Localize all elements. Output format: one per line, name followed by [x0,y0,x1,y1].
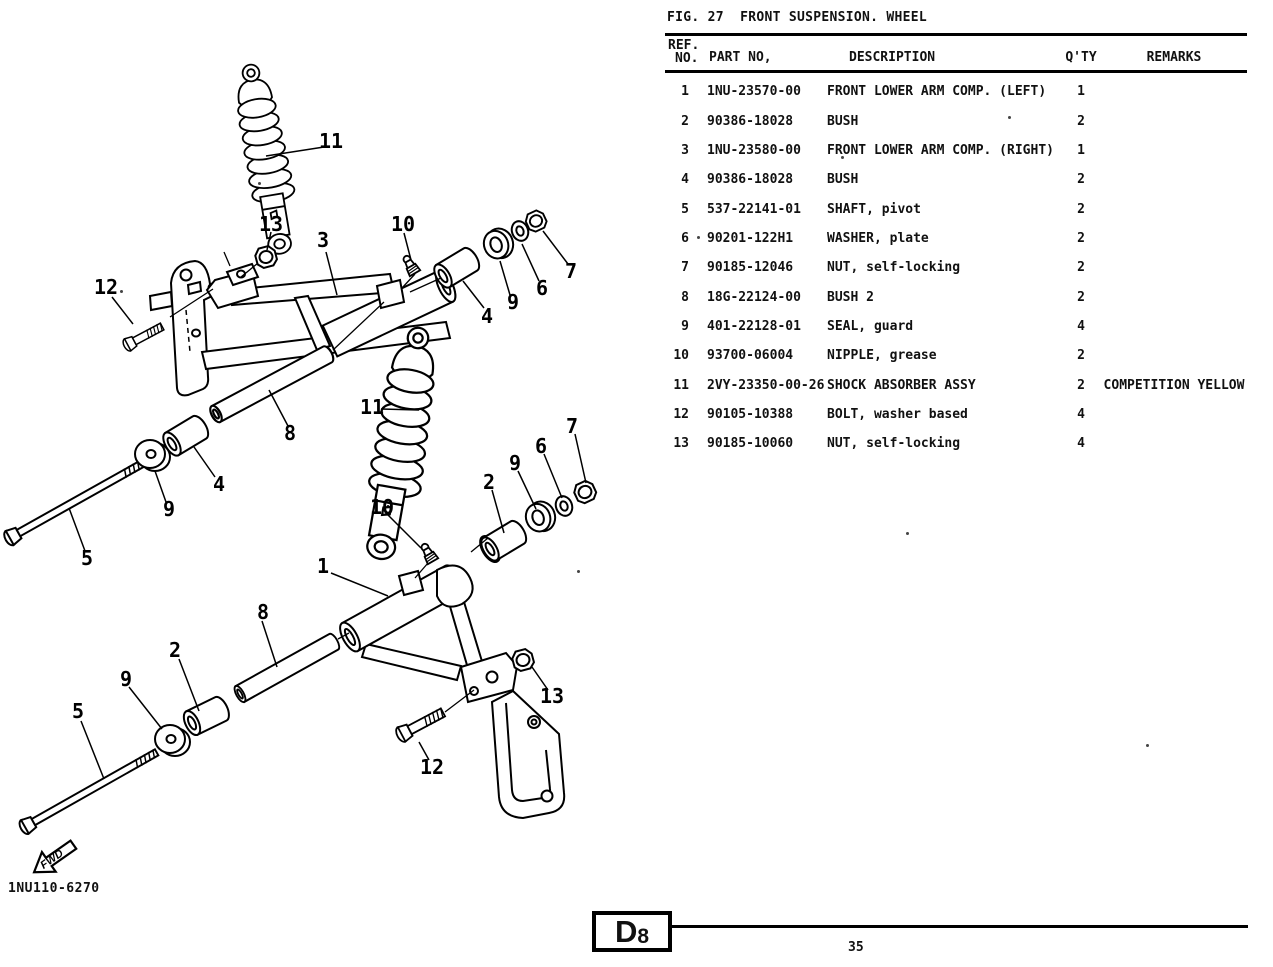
header-qty: Q'TY [1059,50,1103,65]
callout-3: 3 [317,228,329,252]
table-row: 11NU-23570-00FRONT LOWER ARM COMP. (LEFT… [665,77,1247,106]
callout-9-lower: 9 [120,667,132,691]
table-header: REF. NO. PART NO, DESCRIPTION Q'TY REMAR… [665,36,1247,70]
table-row: 5537-22141-01SHAFT, pivot2 [665,194,1247,223]
callout-12-left: 12 [94,275,118,299]
bolt-12-left [121,321,165,353]
shaft-5-lower [17,746,160,836]
callout-9-mid: 9 [163,497,175,521]
scan-speck [258,182,261,185]
table-row: 1093700-06004NIPPLE, grease2 [665,341,1247,370]
table-row: 112VY-23350-00-26SHOCK ABSORBER ASSY2COM… [665,370,1247,399]
scan-speck [841,156,844,159]
callout-6-top: 6 [536,276,548,300]
fwd-arrow: FWD [27,835,80,882]
header-ref: REF. NO. [665,39,707,65]
callout-11-mid: 11 [360,395,384,419]
callout-1: 1 [317,554,329,578]
tube-8-lower [232,632,341,704]
callout-8-lower: 8 [257,600,269,624]
table-row: 490386-18028BUSH2 [665,165,1247,194]
callout-5-upper: 5 [81,546,93,570]
table-body: 11NU-23570-00FRONT LOWER ARM COMP. (LEFT… [665,73,1247,458]
figure-title: FIG. 27 FRONT SUSPENSION. WHEEL [667,10,927,25]
scan-speck [120,290,123,293]
exploded-diagram: 11 13 3 10 12 4 9 6 7 8 4 9 5 11 7 6 9 2… [0,0,660,900]
callout-5-lower: 5 [72,699,84,723]
table-row: 818G-22124-00BUSH 22 [665,282,1247,311]
callout-13-bracket: 13 [540,684,564,708]
callout-11-top: 11 [319,129,343,153]
callout-8-upper: 8 [284,421,296,445]
callout-2-right: 2 [483,470,495,494]
scan-speck [697,236,700,239]
table-row: 31NU-23580-00FRONT LOWER ARM COMP. (RIGH… [665,136,1247,165]
seal-9-lower [155,725,190,756]
page-number: 35 [848,940,864,955]
scan-speck [1008,116,1011,119]
callout-9-top: 9 [507,290,519,314]
callout-12-bracket: 12 [420,755,444,779]
parts-table: REF. NO. PART NO, DESCRIPTION Q'TY REMAR… [665,33,1247,458]
callout-10-top: 10 [391,212,415,236]
table-row: 1290105-10388BOLT, washer based4 [665,400,1247,429]
table-row: 290386-18028BUSH2 [665,106,1247,135]
bolt-12-bracket [394,705,447,743]
seal-9-right [522,498,560,536]
catalog-page: 11 13 3 10 12 4 9 6 7 8 4 9 5 11 7 6 9 2… [0,0,1273,967]
grease-nipple-mid [418,541,438,564]
callout-7-top: 7 [565,259,577,283]
header-description: DESCRIPTION [827,50,1059,65]
drawing-number: 1NU110-6270 [8,881,100,896]
scan-speck [1146,744,1149,747]
callout-10-mid: 10 [370,495,394,519]
scan-speck [577,570,580,573]
table-row: 1390185-10060NUT, self-locking4 [665,429,1247,458]
nut-7-right [572,479,599,506]
bush-2-lower [180,694,232,737]
shaft-5-upper [2,455,150,547]
callout-9-right: 9 [509,451,521,475]
callout-13-top: 13 [259,212,283,236]
section-code-box: D8 [592,911,672,952]
footer-rule [672,925,1248,928]
header-part-no: PART NO, [707,50,827,65]
section-digit: 8 [637,926,649,948]
table-row: 690201-122H1WASHER, plate2 [665,224,1247,253]
callout-7-right: 7 [566,414,578,438]
callout-4-mid: 4 [213,472,225,496]
washer-6-right [553,494,575,518]
callout-2-lower: 2 [169,638,181,662]
header-remarks: REMARKS [1103,50,1245,65]
scan-speck [906,532,909,535]
table-row: 9401-22128-01SEAL, guard4 [665,312,1247,341]
section-letter: D [615,916,637,947]
mount-bracket-lower [461,653,564,818]
lower-arm [336,562,484,680]
callout-6-right: 6 [535,434,547,458]
callout-4-top: 4 [481,304,493,328]
table-row: 790185-12046NUT, self-locking2 [665,253,1247,282]
